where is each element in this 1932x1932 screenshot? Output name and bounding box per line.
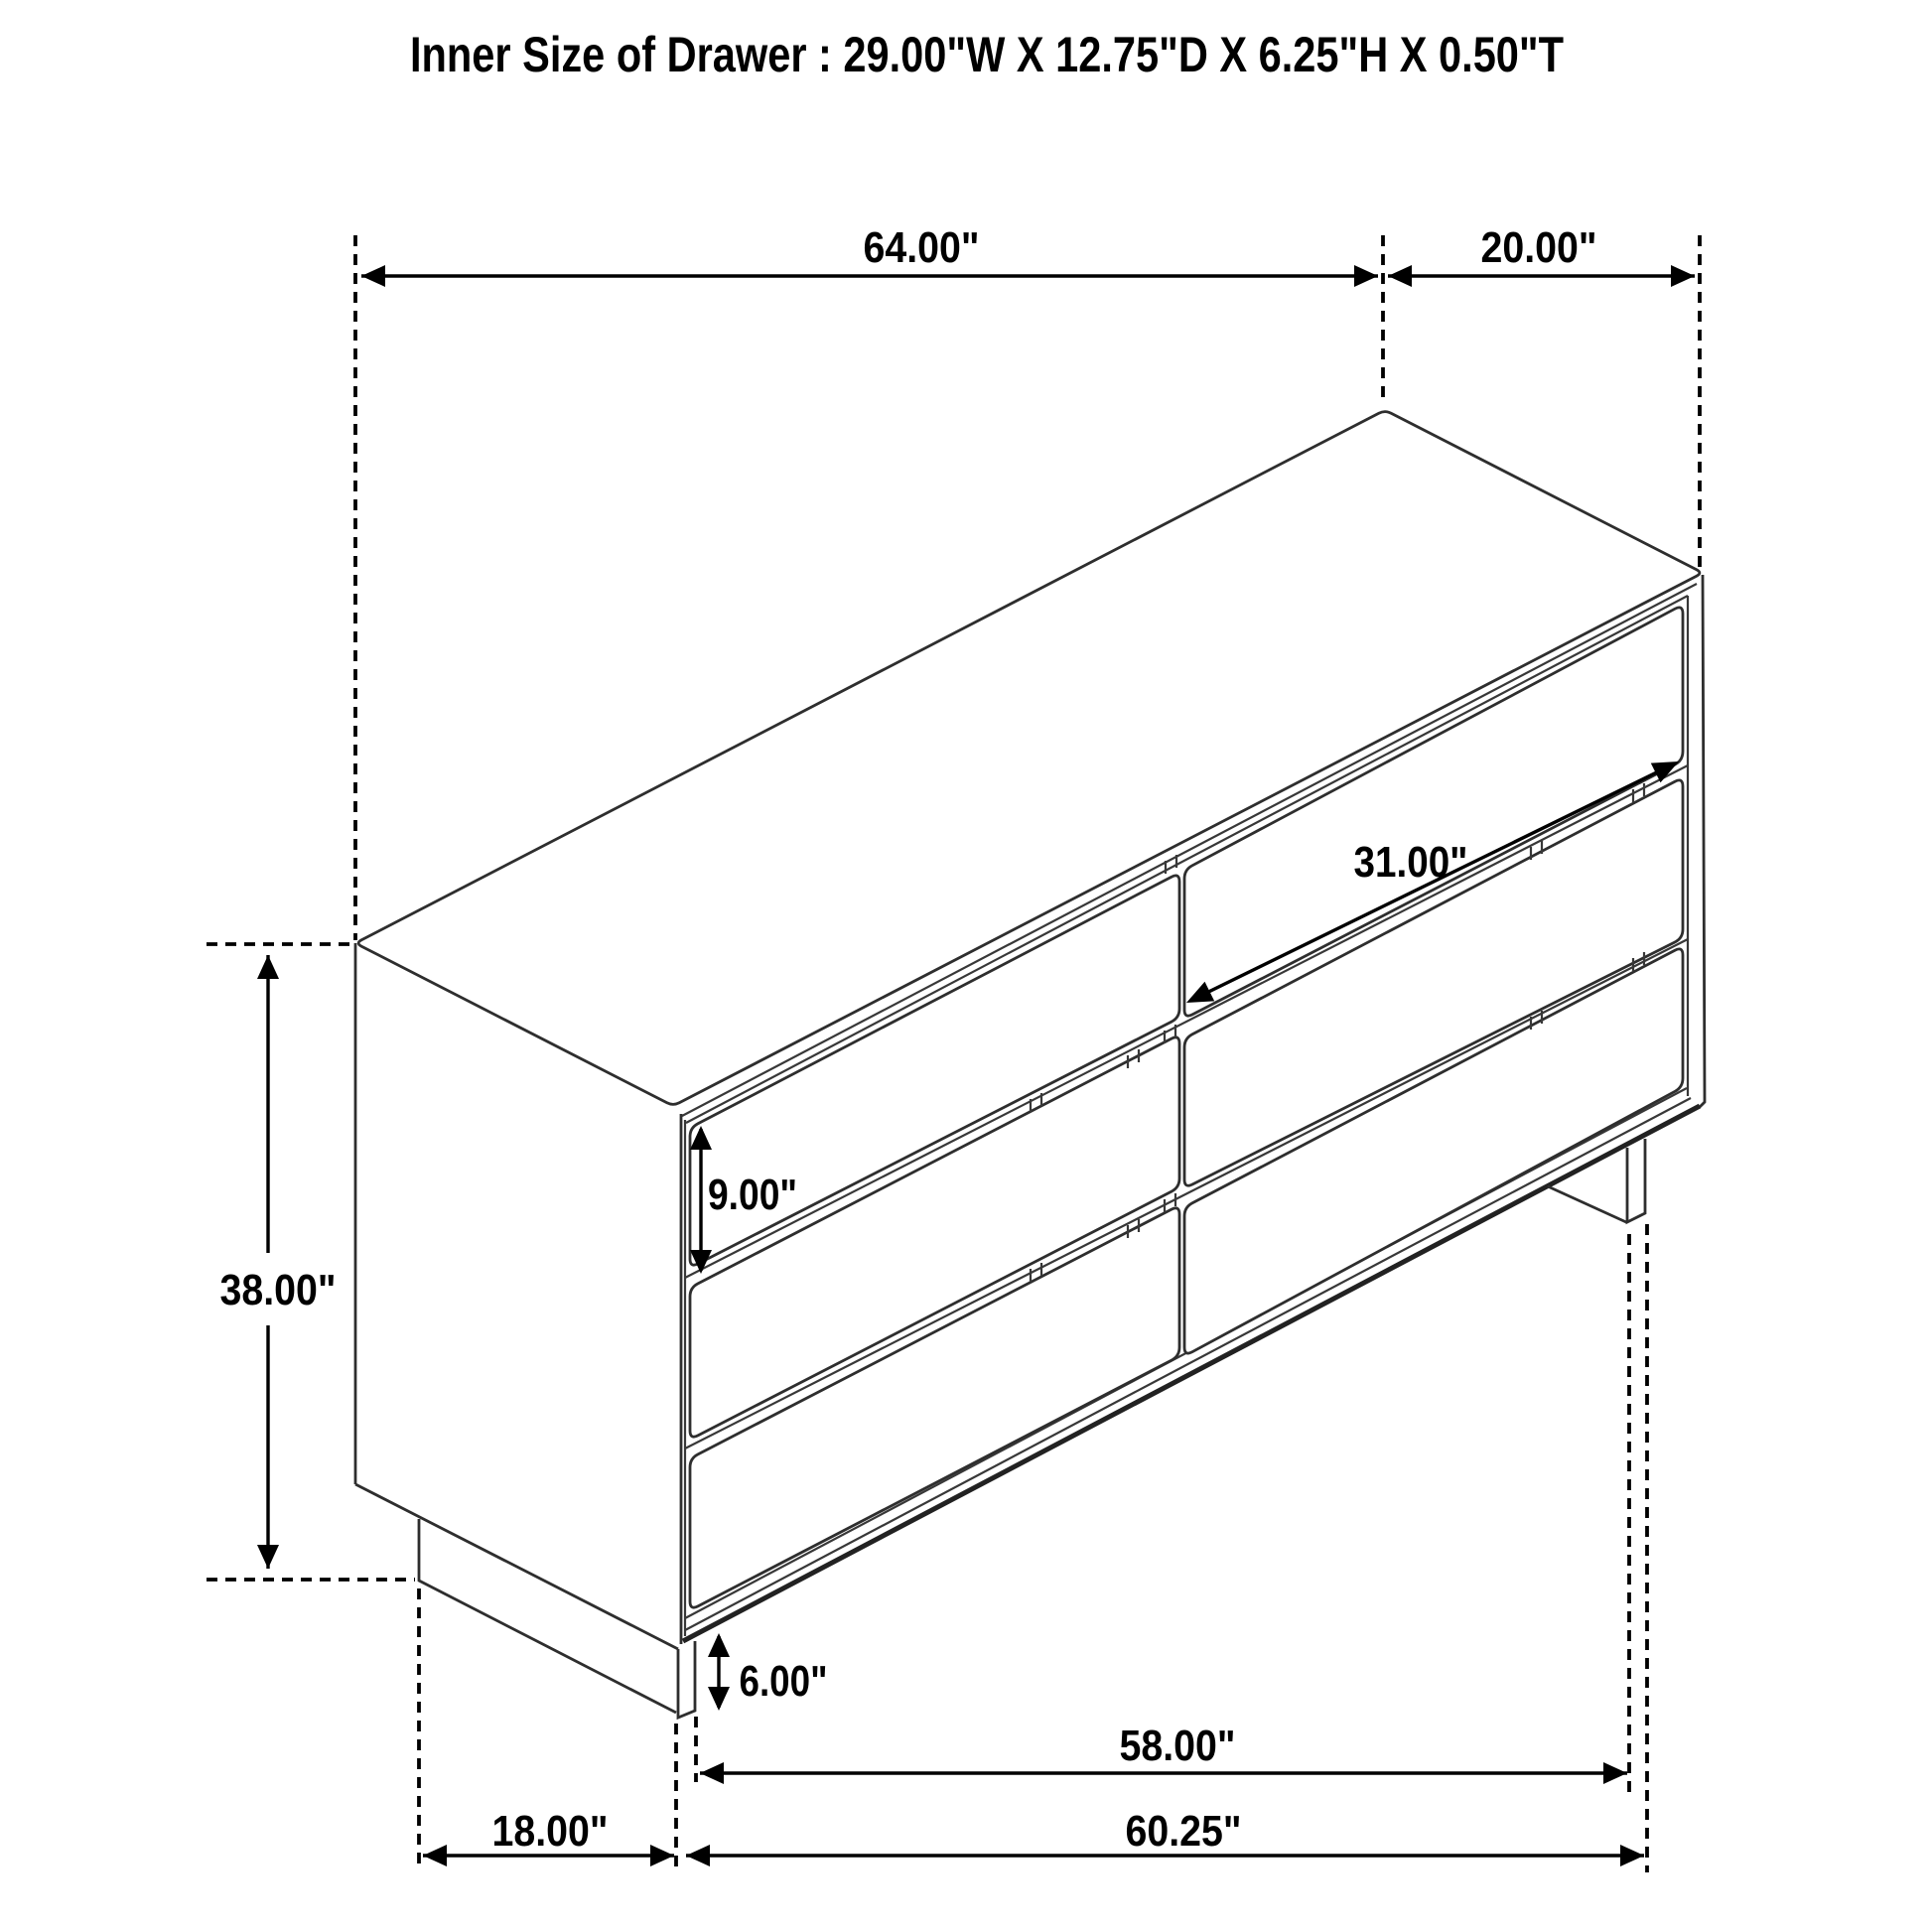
svg-text:6.00": 6.00" xyxy=(740,1657,828,1706)
svg-text:18.00": 18.00" xyxy=(492,1807,609,1856)
svg-text:31.00": 31.00" xyxy=(1354,838,1468,887)
svg-text:20.00": 20.00" xyxy=(1481,223,1597,272)
svg-text:Inner Size of Drawer : 29.00"W: Inner Size of Drawer : 29.00"W X 12.75"D… xyxy=(410,27,1564,82)
svg-text:58.00": 58.00" xyxy=(1120,1722,1236,1770)
svg-text:9.00": 9.00" xyxy=(708,1171,797,1219)
svg-text:38.00": 38.00" xyxy=(220,1266,337,1314)
svg-text:64.00": 64.00" xyxy=(864,223,980,272)
svg-text:60.25": 60.25" xyxy=(1126,1807,1242,1856)
